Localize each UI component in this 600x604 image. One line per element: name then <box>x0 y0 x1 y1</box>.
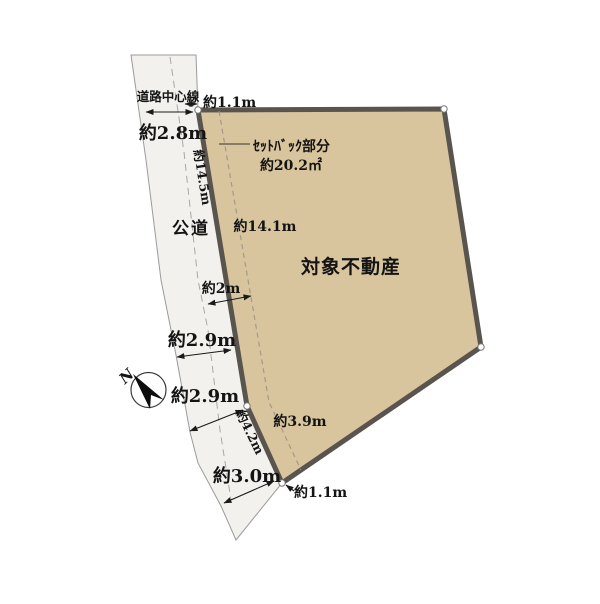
dim-label-setback-length-lower: 約3.9m <box>273 413 326 430</box>
road-label: 公道 <box>172 218 210 239</box>
road-center-line-label: 道路中心線 <box>137 89 200 104</box>
dim-label-road-width-top: 約2.8m <box>139 122 207 144</box>
dim-label-offset-bottom: 約1.1m <box>294 484 347 501</box>
setback-area-label: 約20.2㎡ <box>260 157 322 174</box>
dim-label-offset-top: 約1.1m <box>203 94 256 111</box>
dim-label-road-width-mid1: 約2.9m <box>168 329 236 351</box>
setback-label: ｾｯﾄﾊﾞｯｸ部分 <box>252 138 330 155</box>
north-label: N <box>115 364 139 388</box>
plot-diagram: N 道路中心線 約1.1m 約2.8m 約14.5m 公道 ｾｯﾄﾊﾞｯｸ部分 … <box>0 0 600 600</box>
parcel-label: 対象不動産 <box>300 255 401 278</box>
dim-label-road-width-mid2: 約2.9m <box>171 385 239 407</box>
vertex-dot <box>195 107 201 113</box>
vertex-dot <box>441 106 447 112</box>
dim-label-road-width-bottom: 約3.0m <box>213 465 281 487</box>
north-compass: N <box>115 364 166 409</box>
dim-offset-bottom-pointer <box>286 485 294 491</box>
plot-diagram-svg: N 道路中心線 約1.1m 約2.8m 約14.5m 公道 ｾｯﾄﾊﾞｯｸ部分 … <box>0 0 600 600</box>
dim-label-setback-length-upper: 約14.1m <box>234 218 297 235</box>
dim-label-setback-width: 約2m <box>202 280 241 297</box>
vertex-dot <box>478 344 484 350</box>
